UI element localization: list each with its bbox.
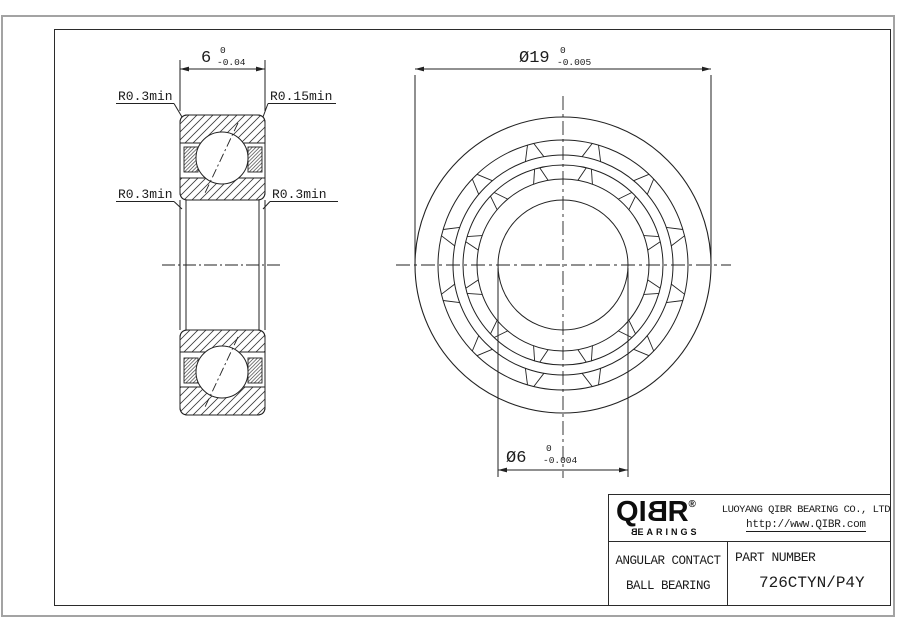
logo-wordmark: QIBR® (616, 499, 722, 527)
ball-bottom (196, 346, 248, 398)
logo-sub-rest: EARINGS (638, 527, 700, 537)
company-name: LUOYANG QIBR BEARING CO., LTD (722, 504, 890, 516)
arrowhead-bore-right (619, 468, 628, 473)
product-type-line2: BALL BEARING (626, 574, 710, 599)
logo-letter: R (668, 496, 689, 528)
radius-label-top-right: R0.15min (270, 89, 332, 104)
logo-letter: I (639, 496, 647, 528)
logo-sub-letter-mirrored-b: B (628, 527, 638, 537)
section-view: 6 0 -0.04 R0.3min R0.15min R0.3min R0.3m… (116, 45, 338, 415)
logo-subtext: BEARINGS (616, 527, 722, 537)
part-number-value: 726CTYN/P4Y (735, 574, 890, 592)
width-dim-tol-lower: -0.04 (217, 57, 246, 68)
bearing-drawing-page: { "drawing": { "width_dim": {"value": "6… (0, 0, 900, 636)
title-block-lower-row: ANGULAR CONTACT BALL BEARING PART NUMBER… (609, 542, 890, 605)
radius-label-bottom-left: R0.3min (118, 187, 173, 202)
company-website[interactable]: http://www.QIBR.com (746, 519, 866, 532)
bore-dim-tol-upper: 0 (546, 443, 552, 454)
part-number-cell: PART NUMBER 726CTYN/P4Y (728, 542, 890, 605)
cage-section-right-bottom (248, 358, 262, 383)
title-block: QIBR® BEARINGS LUOYANG QIBR BEARING CO.,… (608, 494, 891, 606)
od-dim-value: Ø19 (519, 49, 550, 68)
radius-label-top-left: R0.3min (118, 89, 173, 104)
company-logo: QIBR® BEARINGS (609, 495, 722, 541)
section-top-half (180, 115, 265, 200)
front-view: Ø19 0 -0.005 Ø6 0 -0.004 (396, 45, 731, 478)
bore-dim-value: Ø6 (506, 449, 526, 468)
registered-trademark-symbol: ® (689, 499, 696, 510)
radius-label-bottom-right: R0.3min (272, 187, 327, 202)
product-type-line1: ANGULAR CONTACT (615, 549, 720, 574)
part-number-label: PART NUMBER (735, 550, 890, 565)
logo-letter: Q (616, 496, 639, 528)
title-block-header-row: QIBR® BEARINGS LUOYANG QIBR BEARING CO.,… (609, 495, 890, 542)
width-dim-tol-upper: 0 (220, 45, 226, 56)
width-dim-value: 6 (201, 49, 211, 68)
company-info: LUOYANG QIBR BEARING CO., LTD http://www… (722, 495, 890, 541)
arrowhead-bore-left (498, 468, 507, 473)
arrowhead-od-right (702, 67, 711, 72)
width-dimension: 6 0 -0.04 (180, 45, 265, 111)
arrowhead-left (180, 67, 189, 72)
logo-letter-mirrored-b: B (647, 499, 668, 527)
bore-dim-tol-lower: -0.004 (543, 455, 578, 466)
section-bottom-half (180, 330, 265, 415)
product-type-cell: ANGULAR CONTACT BALL BEARING (609, 542, 728, 605)
arrowhead-od-left (415, 67, 424, 72)
ball-top (196, 132, 248, 184)
od-dim-tol-lower: -0.005 (557, 57, 592, 68)
cage-section-right (248, 147, 262, 172)
arrowhead-right (256, 67, 265, 72)
od-dim-tol-upper: 0 (560, 45, 566, 56)
